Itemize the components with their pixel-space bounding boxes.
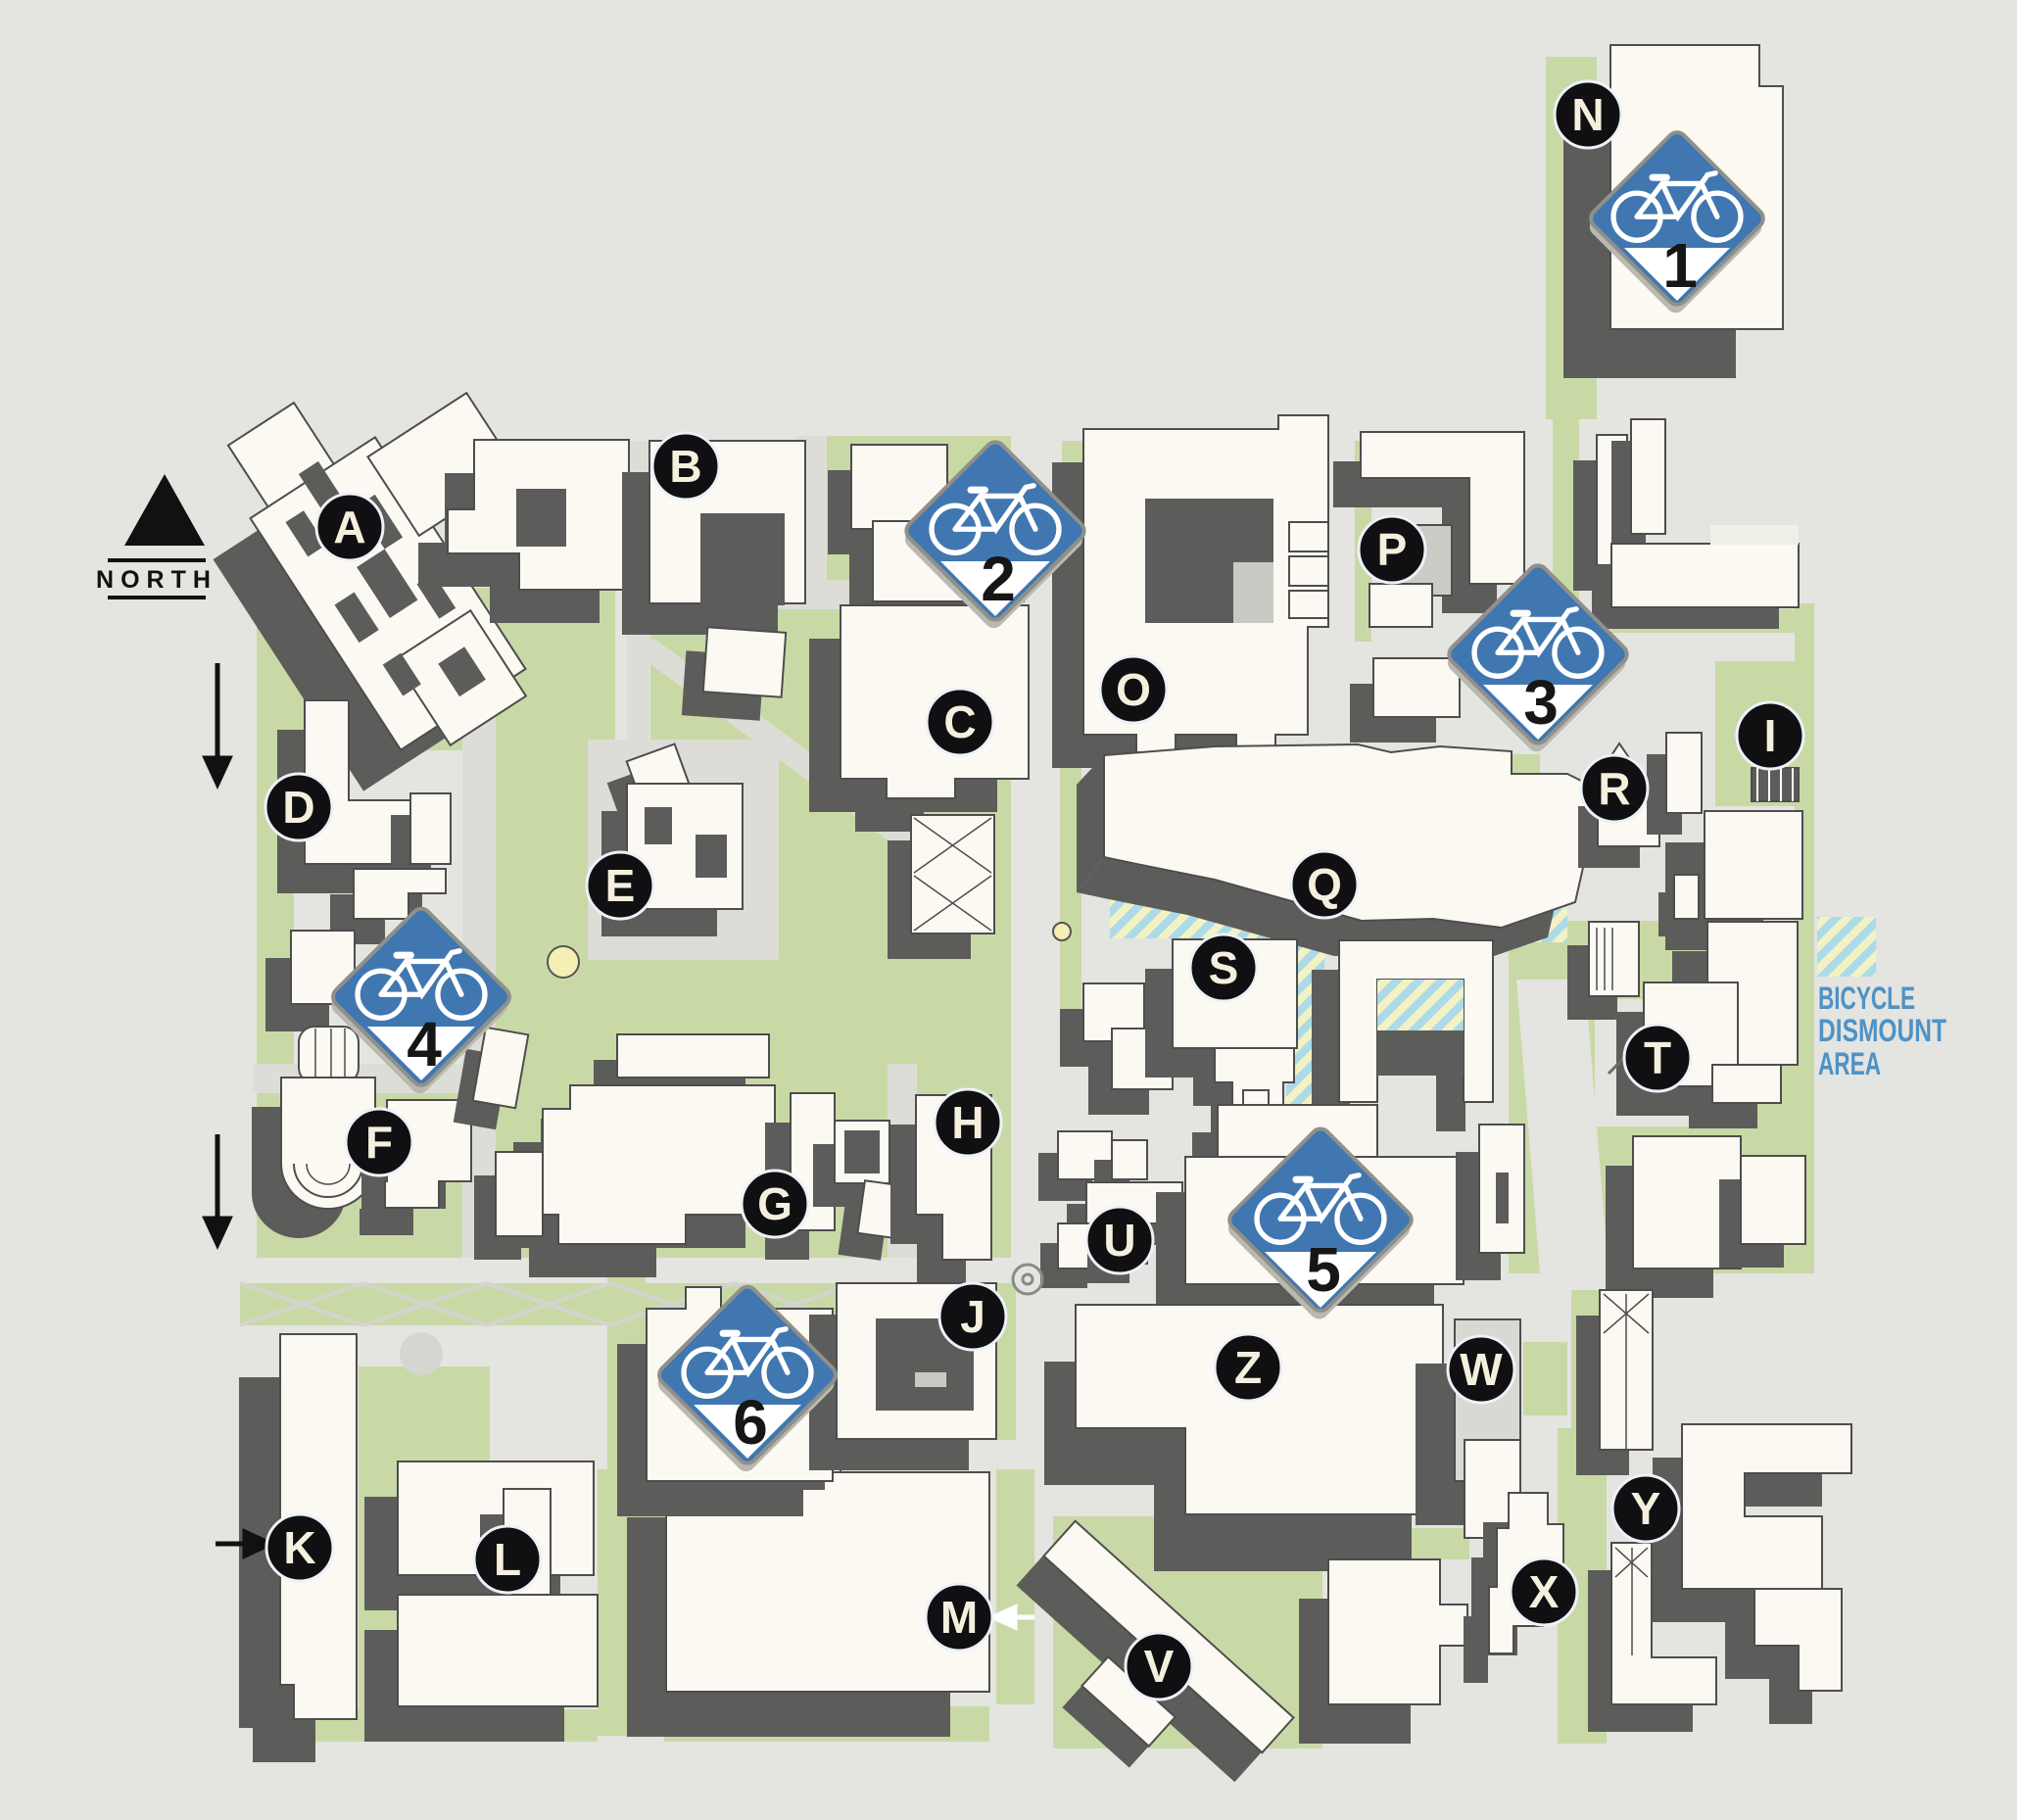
svg-text:3: 3 — [1523, 667, 1559, 738]
svg-text:DISMOUNT: DISMOUNT — [1818, 1013, 1946, 1048]
svg-text:M: M — [940, 1592, 978, 1643]
svg-text:6: 6 — [733, 1387, 768, 1458]
svg-text:5: 5 — [1306, 1234, 1341, 1305]
svg-text:2: 2 — [981, 544, 1016, 614]
svg-text:BICYCLE: BICYCLE — [1818, 981, 1915, 1016]
svg-text:T: T — [1644, 1032, 1671, 1083]
svg-text:G: G — [757, 1178, 792, 1229]
svg-text:W: W — [1460, 1344, 1503, 1395]
svg-text:H: H — [951, 1097, 984, 1148]
svg-text:C: C — [943, 696, 976, 747]
svg-text:D: D — [282, 782, 314, 833]
svg-text:I: I — [1764, 710, 1777, 761]
svg-text:O: O — [1116, 664, 1151, 715]
svg-text:NORTH: NORTH — [96, 566, 217, 594]
svg-text:R: R — [1598, 763, 1630, 814]
svg-text:Q: Q — [1307, 859, 1342, 910]
svg-text:U: U — [1103, 1215, 1135, 1266]
svg-text:Z: Z — [1234, 1342, 1262, 1393]
svg-text:P: P — [1377, 524, 1408, 575]
svg-text:B: B — [669, 441, 701, 492]
svg-text:F: F — [365, 1117, 393, 1168]
svg-text:AREA: AREA — [1818, 1046, 1881, 1081]
svg-text:A: A — [333, 502, 365, 552]
svg-text:1: 1 — [1662, 230, 1698, 301]
svg-text:S: S — [1209, 942, 1239, 993]
svg-text:Y: Y — [1631, 1483, 1661, 1534]
svg-text:N: N — [1571, 89, 1604, 140]
svg-text:4: 4 — [407, 1009, 442, 1079]
svg-text:V: V — [1144, 1641, 1175, 1692]
svg-text:X: X — [1529, 1566, 1560, 1617]
svg-text:K: K — [283, 1522, 315, 1573]
svg-text:L: L — [494, 1534, 521, 1585]
svg-text:J: J — [960, 1291, 985, 1342]
svg-text:E: E — [605, 860, 636, 911]
